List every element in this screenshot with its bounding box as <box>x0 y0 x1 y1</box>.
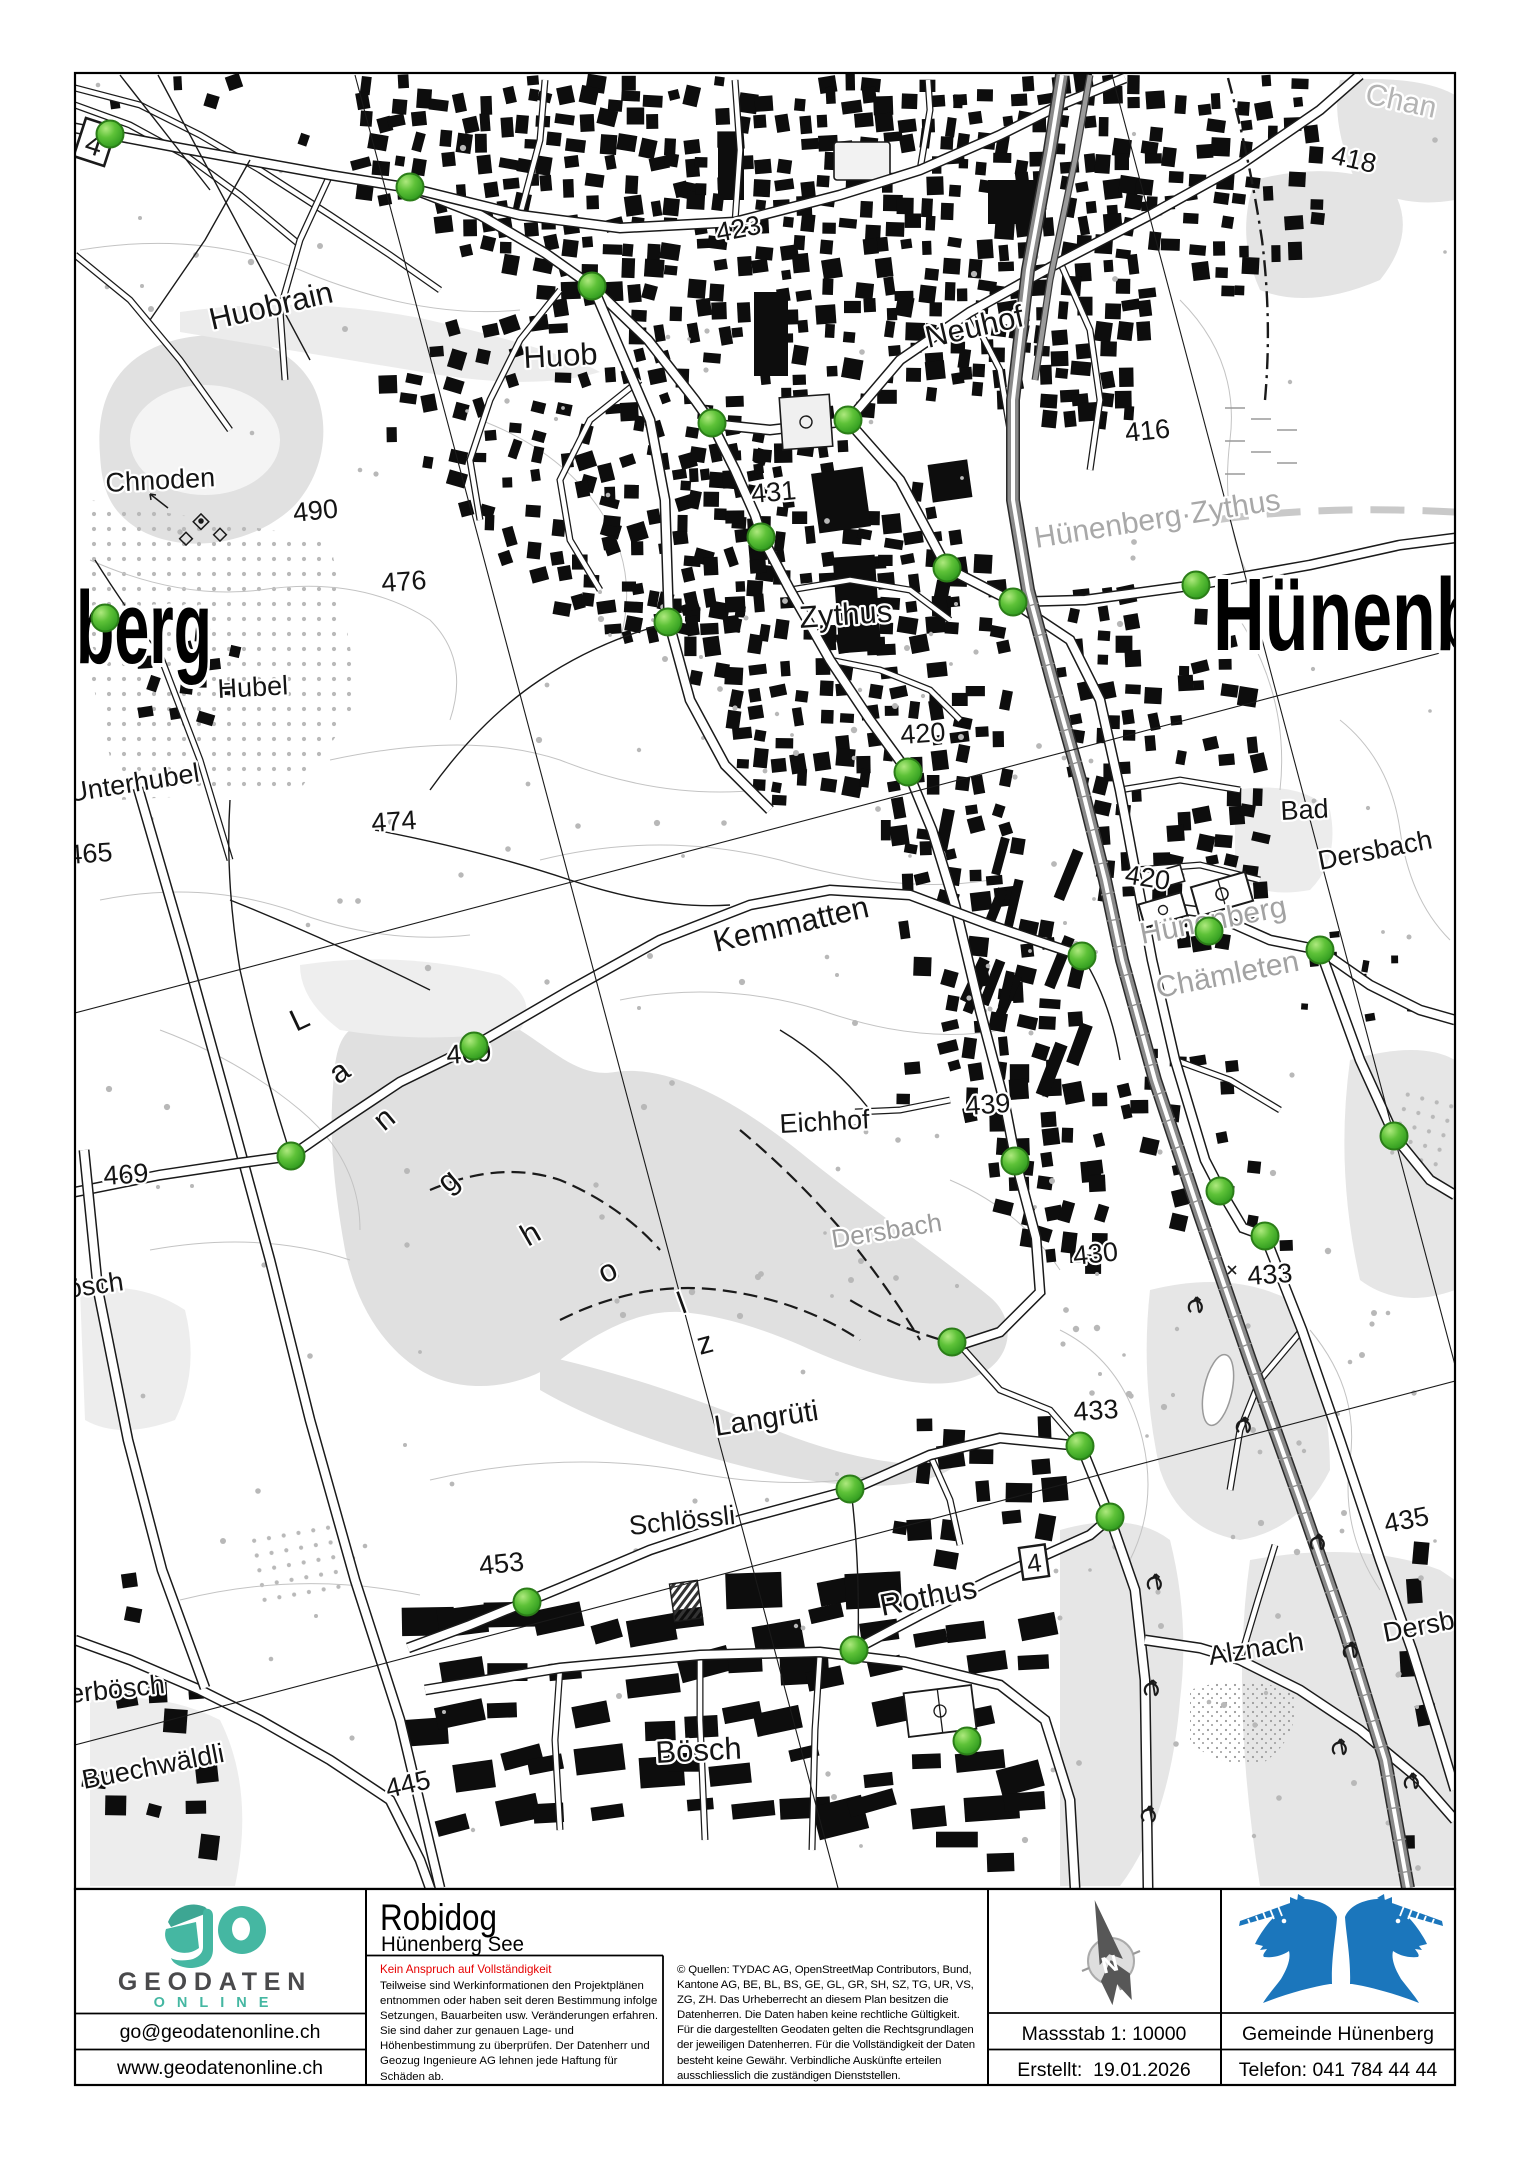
svg-text:go@geodatenonline.ch: go@geodatenonline.ch <box>120 2021 321 2043</box>
svg-text:www.geodatenonline.ch: www.geodatenonline.ch <box>116 2057 323 2079</box>
svg-text:Bad: Bad <box>1280 794 1330 826</box>
svg-text:433: 433 <box>1246 1258 1293 1291</box>
svg-text:Huob: Huob <box>523 336 599 375</box>
svg-text:Bösch: Bösch <box>655 1731 743 1770</box>
svg-text:Robidog: Robidog <box>380 1897 497 1938</box>
svg-text:Hubel: Hubel <box>217 670 289 704</box>
svg-text:433: 433 <box>1072 1394 1119 1427</box>
svg-text:Hünenberg See: Hünenberg See <box>381 1933 524 1956</box>
svg-text:Gemeinde Hünenberg: Gemeinde Hünenberg <box>1242 2023 1434 2045</box>
svg-text:474: 474 <box>370 805 417 838</box>
svg-text:Eichhof: Eichhof <box>779 1104 871 1139</box>
svg-text:Kein Anspruch auf Vollständigk: Kein Anspruch auf Vollständigkeit <box>380 1963 552 1976</box>
svg-text:431: 431 <box>750 475 798 509</box>
svg-text:469: 469 <box>102 1158 149 1191</box>
svg-text:Chnoden: Chnoden <box>105 462 216 498</box>
svg-text:453: 453 <box>477 1546 525 1581</box>
svg-text:Telefon: 041 784 44 44: Telefon: 041 784 44 44 <box>1239 2059 1438 2081</box>
svg-text:476: 476 <box>380 565 427 598</box>
svg-text:416: 416 <box>1123 413 1171 448</box>
svg-text:439: 439 <box>964 1088 1011 1121</box>
svg-text:Massstab 1: 10000: Massstab 1: 10000 <box>1022 2023 1187 2045</box>
svg-text:490: 490 <box>291 493 339 528</box>
svg-text:430: 430 <box>1071 1236 1119 1271</box>
svg-text:Erstellt: 19.01.2026: Erstellt: 19.01.2026 <box>1017 2059 1190 2081</box>
svg-text:ONLINE: ONLINE <box>154 1995 281 2011</box>
svg-text:420: 420 <box>899 717 946 750</box>
svg-text:GEODATEN: GEODATEN <box>118 1968 312 1996</box>
svg-text:Zythus: Zythus <box>798 594 893 635</box>
